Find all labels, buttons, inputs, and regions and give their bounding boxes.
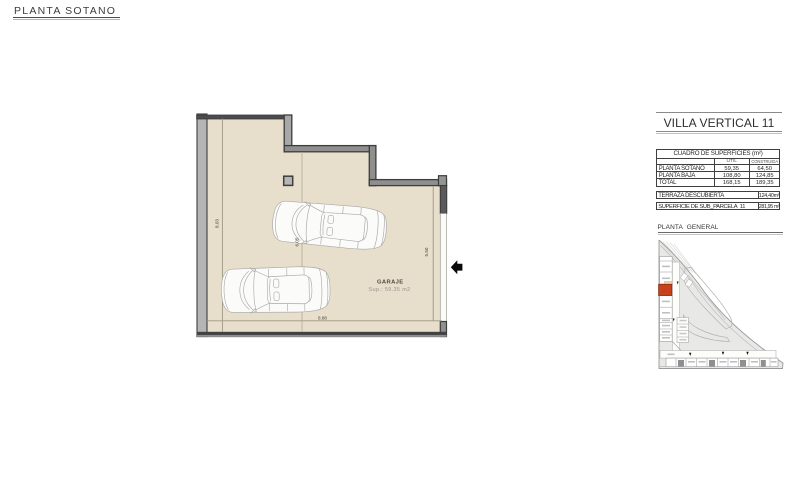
svg-text:5.50: 5.50 [424, 247, 429, 256]
svg-text:8.88: 8.88 [318, 315, 327, 320]
svg-text:8.03: 8.03 [215, 219, 220, 228]
svg-text:GARAJE: GARAJE [377, 279, 404, 285]
svg-text:6.05: 6.05 [295, 237, 300, 246]
svg-text:Sup.: 59.35 m2: Sup.: 59.35 m2 [368, 287, 410, 293]
